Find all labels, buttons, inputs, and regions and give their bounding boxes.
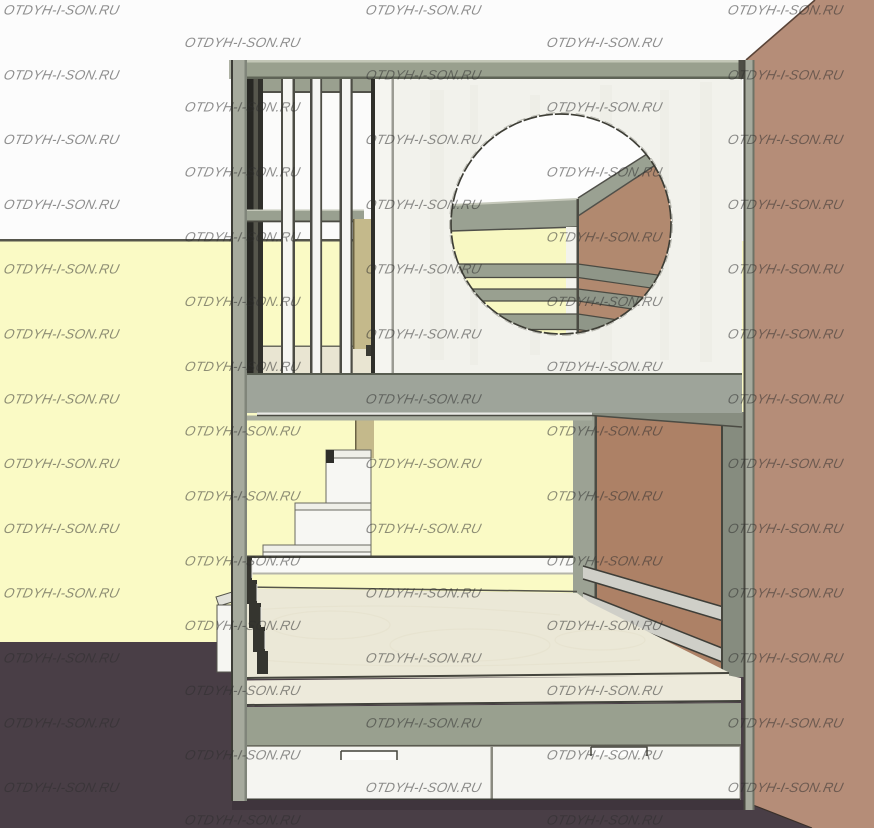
svg-text:OTDYH-I-SON.RU: OTDYH-I-SON.RU (545, 748, 663, 763)
svg-text:OTDYH-I-SON.RU: OTDYH-I-SON.RU (545, 489, 663, 504)
svg-text:OTDYH-I-SON.RU: OTDYH-I-SON.RU (545, 813, 663, 828)
svg-text:OTDYH-I-SON.RU: OTDYH-I-SON.RU (545, 294, 663, 309)
svg-text:OTDYH-I-SON.RU: OTDYH-I-SON.RU (364, 391, 482, 406)
svg-text:OTDYH-I-SON.RU: OTDYH-I-SON.RU (726, 780, 844, 795)
svg-text:OTDYH-I-SON.RU: OTDYH-I-SON.RU (183, 748, 301, 763)
svg-text:OTDYH-I-SON.RU: OTDYH-I-SON.RU (726, 3, 844, 18)
svg-text:OTDYH-I-SON.RU: OTDYH-I-SON.RU (2, 586, 120, 601)
svg-text:OTDYH-I-SON.RU: OTDYH-I-SON.RU (545, 424, 663, 439)
svg-text:OTDYH-I-SON.RU: OTDYH-I-SON.RU (2, 715, 120, 730)
svg-text:OTDYH-I-SON.RU: OTDYH-I-SON.RU (545, 165, 663, 180)
svg-text:OTDYH-I-SON.RU: OTDYH-I-SON.RU (183, 683, 301, 698)
svg-text:OTDYH-I-SON.RU: OTDYH-I-SON.RU (364, 715, 482, 730)
svg-text:OTDYH-I-SON.RU: OTDYH-I-SON.RU (364, 197, 482, 212)
svg-text:OTDYH-I-SON.RU: OTDYH-I-SON.RU (726, 651, 844, 666)
svg-text:OTDYH-I-SON.RU: OTDYH-I-SON.RU (2, 327, 120, 342)
svg-text:OTDYH-I-SON.RU: OTDYH-I-SON.RU (726, 197, 844, 212)
svg-text:OTDYH-I-SON.RU: OTDYH-I-SON.RU (545, 683, 663, 698)
svg-text:OTDYH-I-SON.RU: OTDYH-I-SON.RU (183, 100, 301, 115)
svg-text:OTDYH-I-SON.RU: OTDYH-I-SON.RU (545, 618, 663, 633)
svg-text:OTDYH-I-SON.RU: OTDYH-I-SON.RU (183, 553, 301, 568)
svg-text:OTDYH-I-SON.RU: OTDYH-I-SON.RU (726, 67, 844, 82)
svg-text:OTDYH-I-SON.RU: OTDYH-I-SON.RU (2, 132, 120, 147)
svg-text:OTDYH-I-SON.RU: OTDYH-I-SON.RU (183, 165, 301, 180)
svg-text:OTDYH-I-SON.RU: OTDYH-I-SON.RU (726, 456, 844, 471)
svg-text:OTDYH-I-SON.RU: OTDYH-I-SON.RU (2, 67, 120, 82)
svg-text:OTDYH-I-SON.RU: OTDYH-I-SON.RU (2, 780, 120, 795)
svg-text:OTDYH-I-SON.RU: OTDYH-I-SON.RU (364, 651, 482, 666)
svg-text:OTDYH-I-SON.RU: OTDYH-I-SON.RU (726, 715, 844, 730)
svg-text:OTDYH-I-SON.RU: OTDYH-I-SON.RU (2, 391, 120, 406)
svg-text:OTDYH-I-SON.RU: OTDYH-I-SON.RU (364, 780, 482, 795)
svg-text:OTDYH-I-SON.RU: OTDYH-I-SON.RU (726, 327, 844, 342)
svg-text:OTDYH-I-SON.RU: OTDYH-I-SON.RU (183, 424, 301, 439)
svg-text:OTDYH-I-SON.RU: OTDYH-I-SON.RU (726, 262, 844, 277)
svg-text:OTDYH-I-SON.RU: OTDYH-I-SON.RU (183, 618, 301, 633)
svg-text:OTDYH-I-SON.RU: OTDYH-I-SON.RU (364, 132, 482, 147)
svg-text:OTDYH-I-SON.RU: OTDYH-I-SON.RU (2, 521, 120, 536)
svg-text:OTDYH-I-SON.RU: OTDYH-I-SON.RU (726, 521, 844, 536)
svg-text:OTDYH-I-SON.RU: OTDYH-I-SON.RU (726, 132, 844, 147)
svg-text:OTDYH-I-SON.RU: OTDYH-I-SON.RU (183, 229, 301, 244)
svg-text:OTDYH-I-SON.RU: OTDYH-I-SON.RU (545, 100, 663, 115)
svg-text:OTDYH-I-SON.RU: OTDYH-I-SON.RU (545, 553, 663, 568)
svg-text:OTDYH-I-SON.RU: OTDYH-I-SON.RU (2, 456, 120, 471)
svg-text:OTDYH-I-SON.RU: OTDYH-I-SON.RU (183, 35, 301, 50)
svg-text:OTDYH-I-SON.RU: OTDYH-I-SON.RU (364, 586, 482, 601)
svg-text:OTDYH-I-SON.RU: OTDYH-I-SON.RU (364, 456, 482, 471)
svg-text:OTDYH-I-SON.RU: OTDYH-I-SON.RU (364, 521, 482, 536)
svg-text:OTDYH-I-SON.RU: OTDYH-I-SON.RU (2, 262, 120, 277)
svg-text:OTDYH-I-SON.RU: OTDYH-I-SON.RU (545, 229, 663, 244)
svg-text:OTDYH-I-SON.RU: OTDYH-I-SON.RU (183, 294, 301, 309)
svg-text:OTDYH-I-SON.RU: OTDYH-I-SON.RU (183, 813, 301, 828)
svg-text:OTDYH-I-SON.RU: OTDYH-I-SON.RU (726, 391, 844, 406)
svg-text:OTDYH-I-SON.RU: OTDYH-I-SON.RU (183, 489, 301, 504)
svg-text:OTDYH-I-SON.RU: OTDYH-I-SON.RU (545, 35, 663, 50)
svg-text:OTDYH-I-SON.RU: OTDYH-I-SON.RU (726, 586, 844, 601)
svg-text:OTDYH-I-SON.RU: OTDYH-I-SON.RU (364, 262, 482, 277)
svg-text:OTDYH-I-SON.RU: OTDYH-I-SON.RU (364, 327, 482, 342)
svg-text:OTDYH-I-SON.RU: OTDYH-I-SON.RU (364, 67, 482, 82)
svg-text:OTDYH-I-SON.RU: OTDYH-I-SON.RU (364, 3, 482, 18)
svg-text:OTDYH-I-SON.RU: OTDYH-I-SON.RU (545, 359, 663, 374)
svg-text:OTDYH-I-SON.RU: OTDYH-I-SON.RU (2, 197, 120, 212)
svg-text:OTDYH-I-SON.RU: OTDYH-I-SON.RU (2, 3, 120, 18)
svg-text:OTDYH-I-SON.RU: OTDYH-I-SON.RU (2, 651, 120, 666)
svg-text:OTDYH-I-SON.RU: OTDYH-I-SON.RU (183, 359, 301, 374)
